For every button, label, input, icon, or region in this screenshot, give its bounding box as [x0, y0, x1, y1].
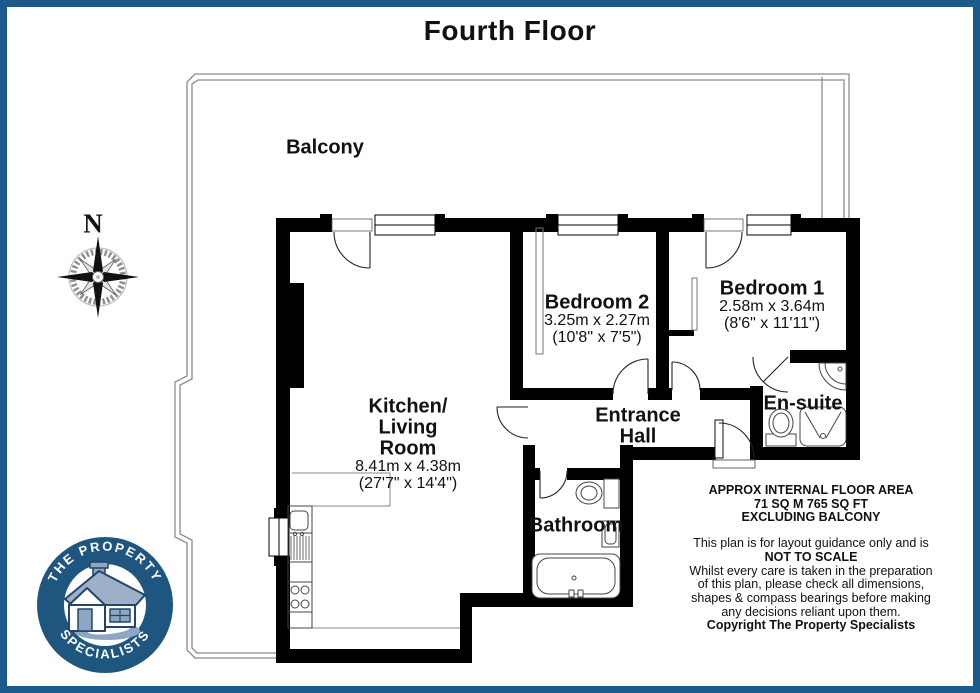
entrance-hall-line2: Hall — [620, 426, 657, 449]
disclaimer-line2: Whilst every care is taken in the prepar… — [660, 565, 962, 579]
corner-sink-icon — [819, 363, 846, 390]
kitchen-fixtures — [288, 473, 460, 628]
window-kitchen — [269, 518, 289, 556]
disclaimer-line4: shapes & compass bearings before making — [660, 592, 962, 606]
floorplan-page: THE PROPERTY SPECIALISTS Fourth Floor Ba… — [0, 0, 980, 693]
window-living — [375, 215, 435, 235]
bedroom1-dims-imperial: (8'6" x 11'11") — [724, 315, 820, 333]
toilet-icon — [576, 479, 619, 508]
disclaimer-line3: of this plan, please check all dimension… — [660, 578, 962, 592]
door-living-hall — [497, 407, 528, 438]
door-bedroom1 — [672, 362, 700, 390]
bathroom-fixtures — [532, 479, 620, 598]
disclaimer-line5: any decisions reliant upon them. — [660, 606, 962, 620]
kitchen-name-line2: Living — [379, 417, 438, 440]
sink-icon — [290, 511, 308, 536]
footer-disclaimer-block: APPROX INTERNAL FLOOR AREA 71 SQ M 765 S… — [660, 484, 962, 633]
not-to-scale-line: NOT TO SCALE — [660, 551, 962, 565]
ensuite-name: En-suite — [764, 393, 843, 416]
bathtub-icon — [532, 554, 620, 598]
balcony-label: Balcony — [286, 137, 364, 160]
window-bedroom2 — [558, 215, 618, 235]
bedroom2-dims-imperial: (10'8" x 7'5") — [552, 329, 642, 347]
door-bathroom — [540, 471, 567, 498]
page-title: Fourth Floor — [424, 15, 596, 47]
kitchen-name-line1: Kitchen/ — [369, 396, 448, 419]
compass-rose — [57, 236, 139, 318]
disclaimer-line1: This plan is for layout guidance only an… — [660, 537, 962, 551]
kitchen-dims-metric: 8.41m x 4.38m — [355, 458, 461, 476]
bedroom2-dims-metric: 3.25m x 2.27m — [544, 312, 650, 330]
floor-area-line1: APPROX INTERNAL FLOOR AREA — [660, 484, 962, 498]
door-bedroom2 — [613, 359, 648, 394]
entrance-hall-line1: Entrance — [595, 405, 681, 428]
window-bedroom1 — [747, 215, 791, 235]
copyright-line: Copyright The Property Specialists — [660, 619, 962, 633]
entrance-door — [713, 420, 755, 468]
balcony-door-bedroom1 — [704, 219, 743, 268]
compass-north-label: N — [83, 209, 103, 240]
bathroom-name: Bathroom — [529, 515, 623, 538]
wall-stub — [668, 330, 694, 336]
bedroom1-dims-metric: 2.58m x 3.64m — [719, 298, 825, 316]
column — [290, 283, 304, 388]
kitchen-zone-line — [292, 473, 460, 628]
logo: THE PROPERTY SPECIALISTS — [37, 537, 173, 673]
hob-icon — [291, 586, 309, 608]
kitchen-dims-imperial: (27'7" x 14'4") — [359, 475, 457, 493]
balcony-door-living — [332, 219, 372, 268]
floor-area-line2: 71 SQ M 765 SQ FT — [660, 498, 962, 512]
drainer-icon — [291, 536, 309, 560]
floor-area-line3: EXCLUDING BALCONY — [660, 511, 962, 525]
